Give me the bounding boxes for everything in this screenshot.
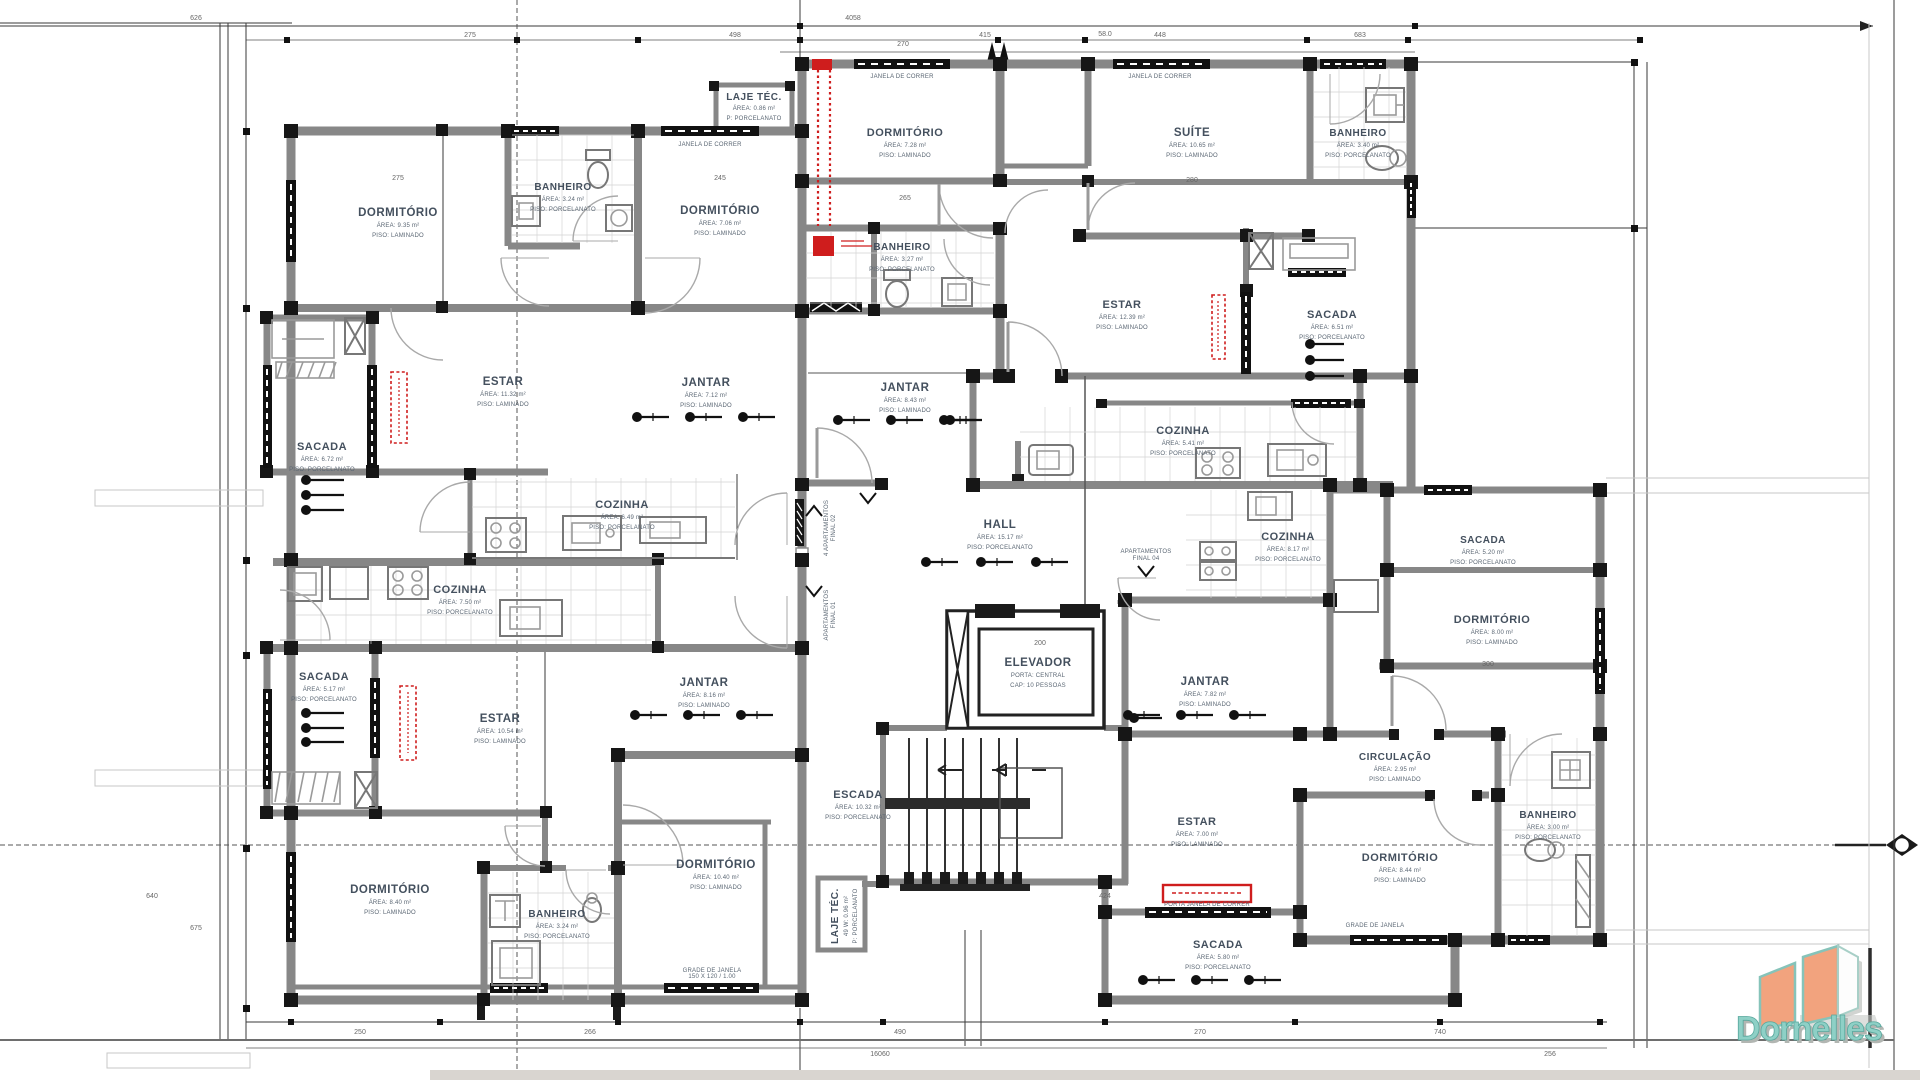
svg-text:P: PORCELANATO: P: PORCELANATO <box>853 888 859 943</box>
svg-text:ÁREA: 5.41 m²: ÁREA: 5.41 m² <box>1162 440 1205 447</box>
svg-text:PISO: PORCELANATO: PISO: PORCELANATO <box>427 610 493 616</box>
svg-text:DORMITÓRIO: DORMITÓRIO <box>1454 613 1531 626</box>
svg-text:GRADE DE JANELA: GRADE DE JANELA <box>1346 923 1405 929</box>
svg-text:ÁREA: 5.20 m²: ÁREA: 5.20 m² <box>1462 549 1505 556</box>
svg-text:ÁREA: 3.40 m²: ÁREA: 3.40 m² <box>1337 142 1380 149</box>
svg-text:PISO: LAMINADO: PISO: LAMINADO <box>364 910 416 916</box>
svg-text:SACADA: SACADA <box>299 671 349 683</box>
svg-text:245: 245 <box>714 175 726 182</box>
svg-text:640: 640 <box>146 893 158 900</box>
svg-text:256: 256 <box>1544 1051 1556 1058</box>
svg-text:PISO: LAMINADO: PISO: LAMINADO <box>680 403 732 409</box>
svg-text:ÁREA: 5.17 m²: ÁREA: 5.17 m² <box>303 686 346 693</box>
svg-text:ÁREA: 3.00 m²: ÁREA: 3.00 m² <box>1527 824 1570 831</box>
svg-text:PISO: PORCELANATO: PISO: PORCELANATO <box>1299 335 1365 341</box>
svg-text:ÁREA: 5.80 m²: ÁREA: 5.80 m² <box>1197 954 1240 961</box>
svg-text:424: 424 <box>1099 893 1111 900</box>
svg-text:270: 270 <box>1194 1029 1206 1036</box>
svg-text:683: 683 <box>1354 32 1366 39</box>
svg-text:PISO: PORCELANATO: PISO: PORCELANATO <box>1325 153 1391 159</box>
svg-text:ÁREA: 15.17 m²: ÁREA: 15.17 m² <box>977 534 1023 541</box>
svg-text:ÁREA: 8.40 m²: ÁREA: 8.40 m² <box>369 899 412 906</box>
svg-text:PISO: PORCELANATO: PISO: PORCELANATO <box>291 697 357 703</box>
svg-text:FINAL 02: FINAL 02 <box>831 514 837 541</box>
svg-text:JANELA DE CORRER: JANELA DE CORRER <box>678 142 742 148</box>
svg-text:ESTAR: ESTAR <box>1178 816 1217 828</box>
svg-text:PISO: LAMINADO: PISO: LAMINADO <box>879 408 931 414</box>
svg-text:BANHEIRO: BANHEIRO <box>1519 810 1576 821</box>
svg-text:PISO: LAMINADO: PISO: LAMINADO <box>1369 777 1421 783</box>
svg-text:ÁREA: 3.24 m²: ÁREA: 3.24 m² <box>542 196 585 203</box>
svg-text:SACADA: SACADA <box>1307 309 1357 321</box>
svg-text:ESTAR: ESTAR <box>483 376 524 388</box>
svg-text:PORTA: CENTRAL: PORTA: CENTRAL <box>1011 673 1066 679</box>
svg-text:DORMITÓRIO: DORMITÓRIO <box>676 858 756 871</box>
svg-text:ÁREA: 8.16 m²: ÁREA: 8.16 m² <box>683 692 726 699</box>
svg-text:ÁREA: 10.32 m²: ÁREA: 10.32 m² <box>835 804 881 811</box>
svg-text:ÁREA: 8.17 m²: ÁREA: 8.17 m² <box>1267 546 1310 553</box>
svg-text:4058: 4058 <box>845 15 861 22</box>
svg-text:58.0: 58.0 <box>1098 31 1112 38</box>
svg-text:COZINHA: COZINHA <box>1261 531 1315 543</box>
svg-text:200: 200 <box>1034 640 1046 647</box>
svg-text:PISO: LAMINADO: PISO: LAMINADO <box>474 739 526 745</box>
svg-text:JANTAR: JANTAR <box>680 677 729 689</box>
svg-text:COZINHA: COZINHA <box>595 499 649 511</box>
svg-text:BANHEIRO: BANHEIRO <box>1329 128 1386 139</box>
svg-text:ÁREA: 10.40 m²: ÁREA: 10.40 m² <box>693 874 739 881</box>
svg-text:ÁREA: 12.39 m²: ÁREA: 12.39 m² <box>1099 314 1145 321</box>
svg-text:ÁREA: 8.44 m²: ÁREA: 8.44 m² <box>1379 867 1422 874</box>
svg-text:JANELA DE CORRER: JANELA DE CORRER <box>870 74 934 80</box>
svg-text:PISO: LAMINADO: PISO: LAMINADO <box>1179 702 1231 708</box>
svg-text:265: 265 <box>899 195 911 202</box>
svg-text:ÁREA: 10.65 m²: ÁREA: 10.65 m² <box>1169 142 1215 149</box>
svg-text:PISO: PORCELANATO: PISO: PORCELANATO <box>524 934 590 940</box>
svg-text:PISO: PORCELANATO: PISO: PORCELANATO <box>1185 965 1251 971</box>
svg-text:4 APARTAMENTOS: 4 APARTAMENTOS <box>824 500 830 556</box>
svg-text:PISO: PORCELANATO: PISO: PORCELANATO <box>1515 835 1581 841</box>
svg-text:BANHEIRO: BANHEIRO <box>534 182 591 193</box>
svg-text:JANTAR: JANTAR <box>881 382 930 394</box>
svg-text:CAP: 10 PESSOAS: CAP: 10 PESSOAS <box>1010 683 1066 689</box>
svg-text:PISO: PORCELANATO: PISO: PORCELANATO <box>825 815 891 821</box>
svg-text:PISO: LAMINADO: PISO: LAMINADO <box>477 402 529 408</box>
svg-text:266: 266 <box>584 1029 596 1036</box>
svg-text:PISO: PORCELANATO: PISO: PORCELANATO <box>1255 557 1321 563</box>
svg-text:PISO: PORCELANATO: PISO: PORCELANATO <box>967 545 1033 551</box>
svg-text:PISO: LAMINADO: PISO: LAMINADO <box>1466 640 1518 646</box>
svg-text:49 W: 0.96 m²: 49 W: 0.96 m² <box>844 896 850 936</box>
svg-text:DORMITÓRIO: DORMITÓRIO <box>867 126 944 139</box>
svg-text:PISO: LAMINADO: PISO: LAMINADO <box>690 885 742 891</box>
svg-text:ÁREA: 8.00 m²: ÁREA: 8.00 m² <box>1471 629 1514 636</box>
svg-text:SUÍTE: SUÍTE <box>1174 126 1210 139</box>
svg-text:DORMITÓRIO: DORMITÓRIO <box>350 883 430 896</box>
svg-text:PISO: LAMINADO: PISO: LAMINADO <box>1166 153 1218 159</box>
svg-text:ÁREA: 6.49 m²: ÁREA: 6.49 m² <box>601 514 644 521</box>
svg-text:PORTA JANELA DE CORRER: PORTA JANELA DE CORRER <box>1164 902 1250 908</box>
svg-text:COZINHA: COZINHA <box>433 584 487 596</box>
svg-text:ÁREA: 6.51 m²: ÁREA: 6.51 m² <box>1311 324 1354 331</box>
svg-text:PISO: PORCELANATO: PISO: PORCELANATO <box>289 467 355 473</box>
svg-text:275: 275 <box>392 175 404 182</box>
svg-text:ESCADA: ESCADA <box>833 789 882 801</box>
svg-text:APARTAMENTOS: APARTAMENTOS <box>1121 549 1172 555</box>
svg-text:ÁREA: 2.95 m²: ÁREA: 2.95 m² <box>1374 766 1417 773</box>
svg-text:P: PORCELANATO: P: PORCELANATO <box>727 116 782 122</box>
svg-text:415: 415 <box>979 32 991 39</box>
svg-text:ESTAR: ESTAR <box>1103 299 1142 311</box>
svg-text:ÁREA: 7.06 m²: ÁREA: 7.06 m² <box>699 220 742 227</box>
svg-text:CIRCULAÇÃO: CIRCULAÇÃO <box>1359 750 1431 763</box>
svg-text:PISO: LAMINADO: PISO: LAMINADO <box>1374 878 1426 884</box>
svg-text:PISO: PORCELANATO: PISO: PORCELANATO <box>589 525 655 531</box>
svg-text:JANTAR: JANTAR <box>682 377 731 389</box>
svg-text:275: 275 <box>464 32 476 39</box>
svg-text:PISO: LAMINADO: PISO: LAMINADO <box>1171 842 1223 848</box>
svg-text:ÁREA: 11.32 m²: ÁREA: 11.32 m² <box>480 391 526 398</box>
svg-text:JANELA DE CORRER: JANELA DE CORRER <box>1128 74 1192 80</box>
svg-text:ESTAR: ESTAR <box>480 713 521 725</box>
svg-text:675: 675 <box>190 925 202 932</box>
svg-text:270: 270 <box>897 41 909 48</box>
svg-text:ÁREA: 0.86 m²: ÁREA: 0.86 m² <box>733 105 776 112</box>
svg-text:SACADA: SACADA <box>1193 939 1243 951</box>
svg-text:ÁREA: 7.00 m²: ÁREA: 7.00 m² <box>1176 831 1219 838</box>
svg-text:LAJE TÉC.: LAJE TÉC. <box>726 90 782 103</box>
svg-text:JANTAR: JANTAR <box>1181 676 1230 688</box>
svg-text:LAJE TÉC.: LAJE TÉC. <box>828 888 841 944</box>
svg-text:PISO: LAMINADO: PISO: LAMINADO <box>694 231 746 237</box>
svg-text:498: 498 <box>729 32 741 39</box>
svg-text:ÁREA: 8.43 m²: ÁREA: 8.43 m² <box>884 397 927 404</box>
svg-text:PISO: PORCELANATO: PISO: PORCELANATO <box>869 267 935 273</box>
svg-text:Dornelles: Dornelles <box>1736 1010 1882 1048</box>
svg-text:PISO: PORCELANATO: PISO: PORCELANATO <box>1150 451 1216 457</box>
svg-text:PISO: PORCELANATO: PISO: PORCELANATO <box>1450 560 1516 566</box>
svg-text:FINAL 01: FINAL 01 <box>831 601 837 628</box>
svg-text:APARTAMENTOS: APARTAMENTOS <box>824 590 830 641</box>
svg-text:ÁREA: 9.35 m²: ÁREA: 9.35 m² <box>377 222 420 229</box>
svg-text:DORMITÓRIO: DORMITÓRIO <box>358 206 438 219</box>
svg-text:490: 490 <box>894 1029 906 1036</box>
svg-text:300: 300 <box>1482 661 1494 668</box>
svg-text:PISO: LAMINADO: PISO: LAMINADO <box>1096 325 1148 331</box>
svg-text:ÁREA: 10.54 m²: ÁREA: 10.54 m² <box>477 728 523 735</box>
svg-text:COZINHA: COZINHA <box>1156 425 1210 437</box>
svg-text:ÁREA: 3.24 m²: ÁREA: 3.24 m² <box>536 923 579 930</box>
svg-text:SACADA: SACADA <box>297 441 347 453</box>
svg-text:150 X 120 / 1.00: 150 X 120 / 1.00 <box>688 974 736 980</box>
svg-text:PISO: LAMINADO: PISO: LAMINADO <box>678 703 730 709</box>
svg-text:PISO: PORCELANATO: PISO: PORCELANATO <box>530 207 596 213</box>
svg-text:ELEVADOR: ELEVADOR <box>1004 657 1071 669</box>
svg-text:DORMITÓRIO: DORMITÓRIO <box>680 204 760 217</box>
svg-text:ÁREA: 3.27 m²: ÁREA: 3.27 m² <box>881 256 924 263</box>
svg-text:ÁREA: 7.50 m²: ÁREA: 7.50 m² <box>439 599 482 606</box>
svg-text:16060: 16060 <box>870 1051 890 1058</box>
svg-text:BANHEIRO: BANHEIRO <box>873 242 930 253</box>
svg-text:SACADA: SACADA <box>1460 535 1506 546</box>
svg-text:ÁREA: 7.82 m²: ÁREA: 7.82 m² <box>1184 691 1227 698</box>
svg-text:DORMITÓRIO: DORMITÓRIO <box>1362 851 1439 864</box>
svg-text:ÁREA: 7.28 m²: ÁREA: 7.28 m² <box>884 142 927 149</box>
svg-text:740: 740 <box>1434 1029 1446 1036</box>
svg-text:BANHEIRO: BANHEIRO <box>528 909 585 920</box>
svg-text:ÁREA: 6.72 m²: ÁREA: 6.72 m² <box>301 456 344 463</box>
svg-text:PISO: LAMINADO: PISO: LAMINADO <box>372 233 424 239</box>
svg-text:ÁREA: 7.12 m²: ÁREA: 7.12 m² <box>685 392 728 399</box>
svg-text:626: 626 <box>190 15 202 22</box>
svg-text:PISO: LAMINADO: PISO: LAMINADO <box>879 153 931 159</box>
svg-text:250: 250 <box>354 1029 366 1036</box>
svg-text:448: 448 <box>1154 32 1166 39</box>
svg-text:280: 280 <box>1186 177 1198 184</box>
svg-text:HALL: HALL <box>984 519 1017 531</box>
svg-text:FINAL 04: FINAL 04 <box>1133 556 1160 562</box>
